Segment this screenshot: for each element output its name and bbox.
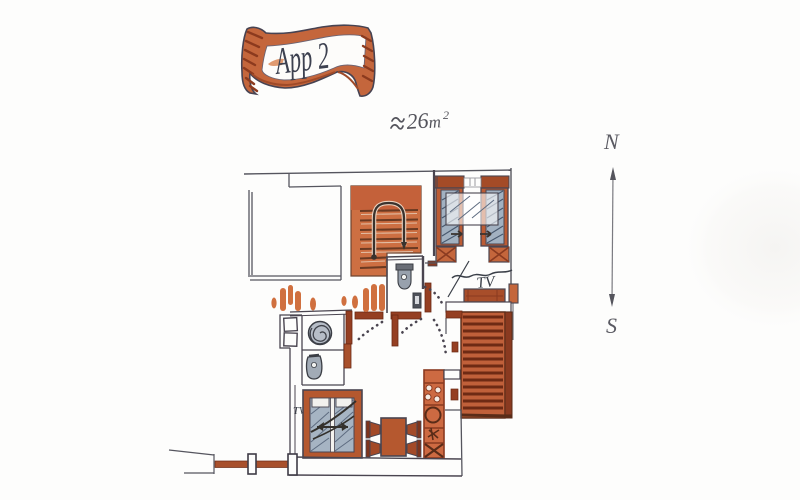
svg-text:2: 2 bbox=[443, 108, 449, 122]
svg-text:m: m bbox=[428, 112, 442, 132]
svg-text:S: S bbox=[606, 313, 617, 338]
svg-text:26: 26 bbox=[406, 108, 430, 134]
svg-text:App 2: App 2 bbox=[271, 34, 331, 83]
svg-text:N: N bbox=[603, 129, 620, 154]
